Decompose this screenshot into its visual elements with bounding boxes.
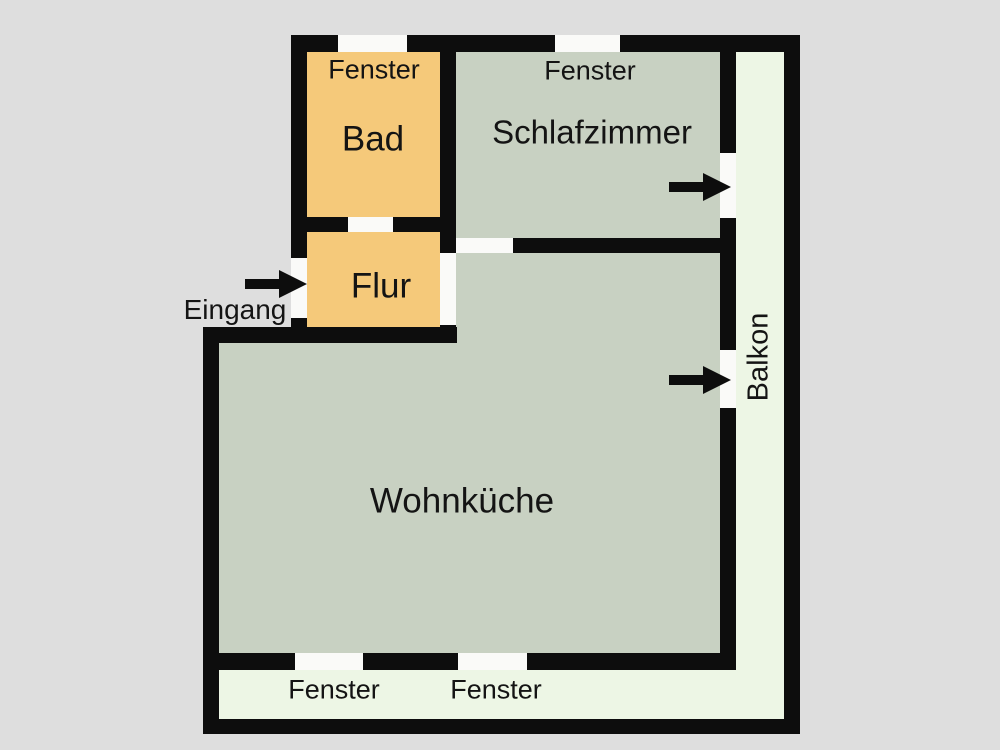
eingang-arrow-icon [245, 269, 307, 299]
window-opening-bottom-left [295, 653, 363, 670]
wall-bad-schlafzimmer [440, 35, 456, 253]
fenster-label-schlafzimmer: Fenster [544, 58, 636, 85]
room-label-wohnkueche: Wohnküche [370, 484, 554, 519]
room-label-bad: Bad [342, 122, 404, 157]
door-opening-bad-flur [348, 217, 393, 232]
door-opening-schlafzimmer-wohnkueche [456, 238, 513, 253]
fenster-label-bottom-right: Fenster [450, 677, 542, 704]
wall-schlafzimmer-wohnkueche [513, 238, 736, 253]
outer-wall-left-lower [203, 327, 219, 734]
wohnkueche-upper-area [448, 245, 728, 345]
room-label-flur: Flur [351, 269, 411, 304]
floor-plan: Fenster Fenster Bad Schlafzimmer Flur Ei… [0, 0, 1000, 750]
window-opening-schlafzimmer [555, 35, 620, 52]
fenster-label-bad: Fenster [328, 57, 420, 84]
wall-flur-bottom-step [203, 327, 457, 343]
schlafzimmer-balkon-arrow-icon [669, 172, 731, 202]
fenster-label-bottom-left: Fenster [288, 677, 380, 704]
room-label-balkon: Balkon [745, 313, 774, 402]
wohnkueche-balkon-arrow-icon [669, 365, 731, 395]
eingang-label: Eingang [184, 296, 287, 324]
window-opening-bad [338, 35, 407, 52]
outer-wall-right [784, 35, 800, 734]
window-opening-bottom-right [458, 653, 527, 670]
door-opening-flur-wohnkueche [440, 253, 456, 325]
room-label-schlafzimmer: Schlafzimmer [492, 116, 692, 149]
outer-wall-bottom [203, 719, 800, 734]
